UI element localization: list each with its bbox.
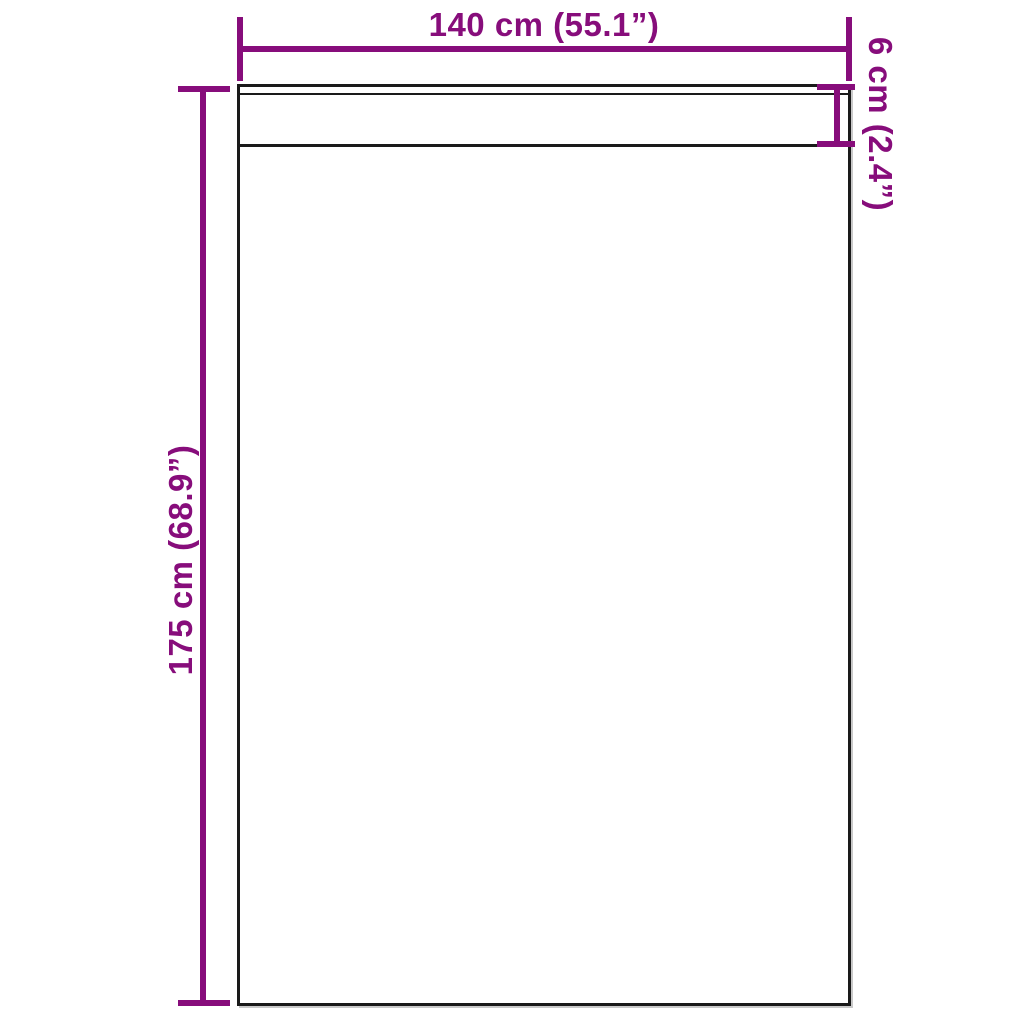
height-dimension-bottom-tick bbox=[178, 1000, 230, 1006]
hem-dimension-top-tick bbox=[817, 84, 855, 90]
hem-seam-line-lower bbox=[240, 144, 848, 147]
hem-dimension-line bbox=[834, 85, 840, 145]
product-outline bbox=[237, 84, 851, 1006]
height-dimension-label: 175 cm (68.9”) bbox=[162, 445, 200, 676]
height-dimension-top-tick bbox=[178, 86, 230, 92]
dimension-diagram: 140 cm (55.1”) 175 cm (68.9”) 6 cm (2.4”… bbox=[0, 0, 1024, 1024]
hem-seam-line-upper bbox=[240, 93, 848, 95]
hem-dimension-label: 6 cm (2.4”) bbox=[861, 37, 899, 211]
width-dimension-line bbox=[237, 46, 851, 52]
hem-dimension-bottom-tick bbox=[817, 141, 855, 147]
height-dimension-line bbox=[200, 86, 206, 1006]
width-dimension-label: 140 cm (55.1”) bbox=[237, 6, 851, 44]
